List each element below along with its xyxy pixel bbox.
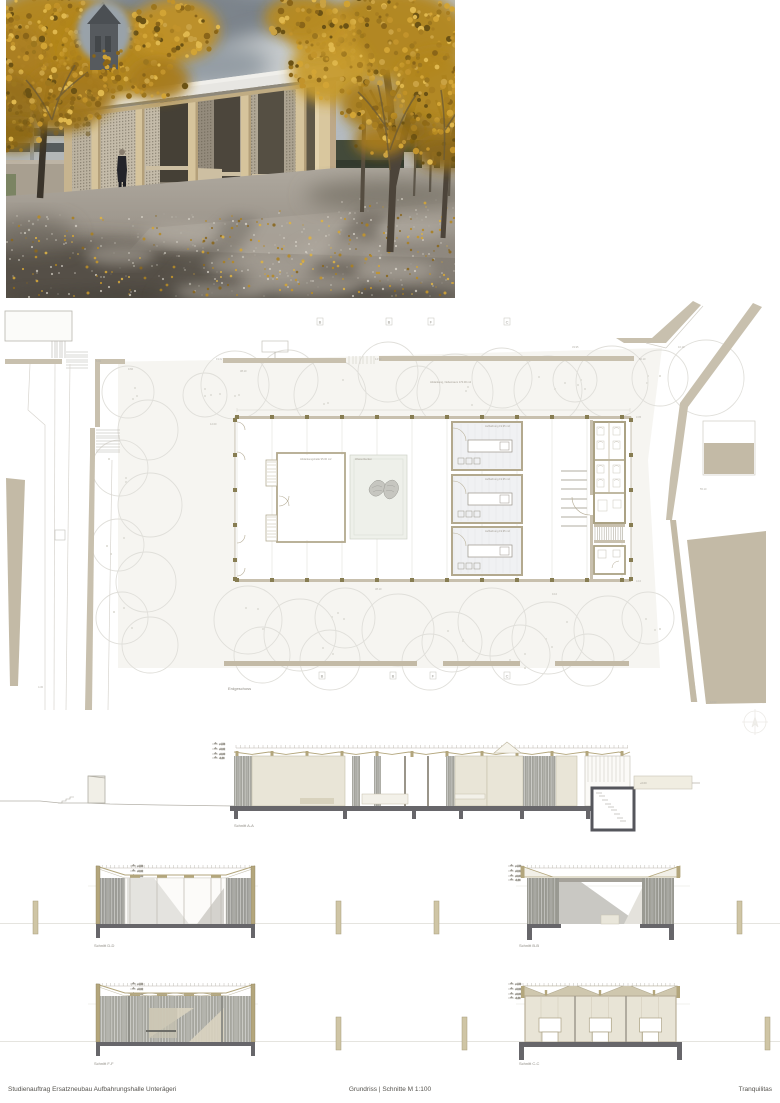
svg-text:-0.36: -0.36 (515, 997, 521, 1000)
svg-text:Aufbahrung 19.95 m2: Aufbahrung 19.95 m2 (485, 424, 511, 428)
svg-text:38.10: 38.10 (375, 587, 382, 591)
svg-text:+3.92: +3.92 (137, 988, 144, 991)
svg-text:9.10: 9.10 (552, 592, 558, 596)
svg-text:Aufbahrung 19.95 m2: Aufbahrung 19.95 m2 (485, 477, 511, 481)
svg-text:10.10: 10.10 (678, 345, 685, 349)
svg-text:14.92: 14.92 (375, 357, 382, 361)
svg-text:55.10: 55.10 (700, 487, 707, 491)
svg-text:+3.92: +3.92 (137, 870, 144, 873)
svg-text:C: C (506, 674, 509, 679)
svg-text:Schnitt F-F: Schnitt F-F (94, 1061, 114, 1066)
svg-text:Erdgeschoss: Erdgeschoss (228, 686, 251, 691)
svg-text:12.00: 12.00 (210, 422, 217, 426)
svg-text:+4.56: +4.56 (137, 983, 144, 986)
svg-text:33.95: 33.95 (572, 345, 579, 349)
svg-text:+4.56: +4.56 (515, 983, 522, 986)
svg-text:3.05: 3.05 (636, 415, 642, 419)
svg-text:50.10: 50.10 (639, 357, 646, 361)
svg-text:B: B (319, 320, 322, 325)
svg-text:Abdankungshalle 95.00 m2: Abdankungshalle 95.00 m2 (300, 457, 332, 461)
svg-text:4.30: 4.30 (38, 685, 44, 689)
svg-text:+4.56: +4.56 (137, 865, 144, 868)
svg-text:Schnitt D-D: Schnitt D-D (94, 943, 115, 948)
svg-text:+0.00: +0.00 (640, 781, 647, 785)
svg-text:B: B (388, 320, 391, 325)
svg-text:38.10: 38.10 (240, 369, 247, 373)
svg-text:-0.36: -0.36 (219, 757, 225, 760)
svg-text:F: F (430, 320, 433, 325)
svg-text:B: B (392, 674, 395, 679)
svg-text:19.02: 19.02 (216, 357, 223, 361)
svg-text:Schnitt A-A: Schnitt A-A (234, 823, 254, 828)
svg-text:F: F (432, 674, 435, 679)
svg-text:Abdankung, Nebenraum 170.00 m2: Abdankung, Nebenraum 170.00 m2 (430, 380, 472, 384)
svg-text:4.10: 4.10 (636, 579, 642, 583)
svg-text:Wasserbecken: Wasserbecken (355, 457, 373, 461)
svg-text:+3.92: +3.92 (219, 748, 226, 751)
svg-text:Schnitt C-C: Schnitt C-C (519, 1061, 540, 1066)
svg-text:C: C (506, 320, 509, 325)
svg-text:+0.00: +0.00 (515, 993, 522, 996)
svg-text:5.60: 5.60 (96, 359, 102, 363)
svg-text:+4.56: +4.56 (219, 743, 226, 746)
svg-text:12.02: 12.02 (710, 700, 717, 704)
svg-text:-0.36: -0.36 (515, 879, 521, 882)
svg-text:+0.00: +0.00 (219, 753, 226, 756)
svg-text:+3.92: +3.92 (515, 988, 522, 991)
svg-text:Schnitt B-B: Schnitt B-B (519, 943, 539, 948)
svg-text:B: B (321, 674, 324, 679)
svg-text:Aufbahrung 19.95 m2: Aufbahrung 19.95 m2 (485, 529, 511, 533)
svg-text:9.60: 9.60 (128, 367, 134, 371)
